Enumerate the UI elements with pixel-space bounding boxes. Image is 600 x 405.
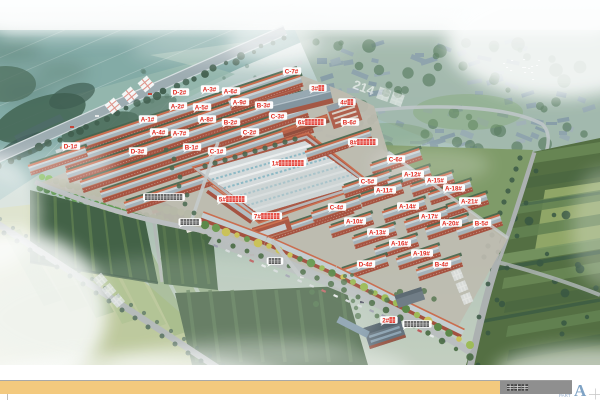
svg-text:A-12#: A-12# [404, 171, 421, 178]
svg-text:B-6#: B-6# [343, 119, 357, 126]
svg-text:A-14#: A-14# [399, 203, 416, 210]
svg-text:A-15#: A-15# [427, 177, 444, 184]
svg-text:A: A [574, 381, 587, 400]
svg-text:A-8#: A-8# [200, 116, 214, 123]
svg-text:C-7#: C-7# [285, 68, 299, 75]
svg-text:C-1#: C-1# [210, 148, 224, 155]
svg-text:A-18#: A-18# [445, 185, 462, 192]
svg-text:A-9#: A-9# [233, 99, 247, 106]
svg-text:C-4#: C-4# [330, 204, 344, 211]
svg-text:A-19#: A-19# [413, 250, 430, 257]
svg-text:A-4#: A-4# [152, 129, 166, 136]
svg-text:PART: PART [559, 393, 571, 398]
svg-text:C-3#: C-3# [271, 113, 285, 120]
svg-text:5#: 5# [219, 196, 226, 203]
svg-text:B-4#: B-4# [435, 261, 449, 268]
svg-text:B-2#: B-2# [224, 119, 238, 126]
svg-text:3#: 3# [311, 85, 318, 92]
svg-text:D-4#: D-4# [359, 261, 373, 268]
svg-text:B-1#: B-1# [185, 144, 199, 151]
svg-text:A-3#: A-3# [203, 86, 217, 93]
svg-text:A-10#: A-10# [346, 218, 363, 225]
svg-text:A-21#: A-21# [461, 198, 478, 205]
svg-text:A-17#: A-17# [421, 213, 438, 220]
svg-text:A-7#: A-7# [173, 130, 187, 137]
svg-text:B-3#: B-3# [257, 102, 271, 109]
svg-text:D-2#: D-2# [173, 89, 187, 96]
svg-text:A-1#: A-1# [141, 116, 155, 123]
svg-text:A-2#: A-2# [171, 103, 185, 110]
svg-text:A-13#: A-13# [369, 229, 386, 236]
svg-text:4#: 4# [340, 99, 347, 106]
svg-text:1#: 1# [272, 160, 279, 167]
svg-text:A-16#: A-16# [391, 240, 408, 247]
svg-text:D-1#: D-1# [64, 143, 78, 150]
svg-text:C-5#: C-5# [361, 178, 375, 185]
svg-text:8#: 8# [350, 139, 357, 146]
svg-text:2#: 2# [382, 317, 389, 324]
svg-text:C-2#: C-2# [243, 129, 257, 136]
svg-text:B-5#: B-5# [475, 220, 489, 227]
svg-text:C-6#: C-6# [389, 156, 403, 163]
svg-text:A-20#: A-20# [442, 220, 459, 227]
svg-text:A-6#: A-6# [224, 88, 238, 95]
svg-text:7#: 7# [254, 213, 261, 220]
svg-text:6#: 6# [298, 119, 305, 126]
svg-text:A-11#: A-11# [376, 187, 393, 194]
svg-text:D-3#: D-3# [131, 148, 145, 155]
svg-text:A-5#: A-5# [195, 104, 209, 111]
